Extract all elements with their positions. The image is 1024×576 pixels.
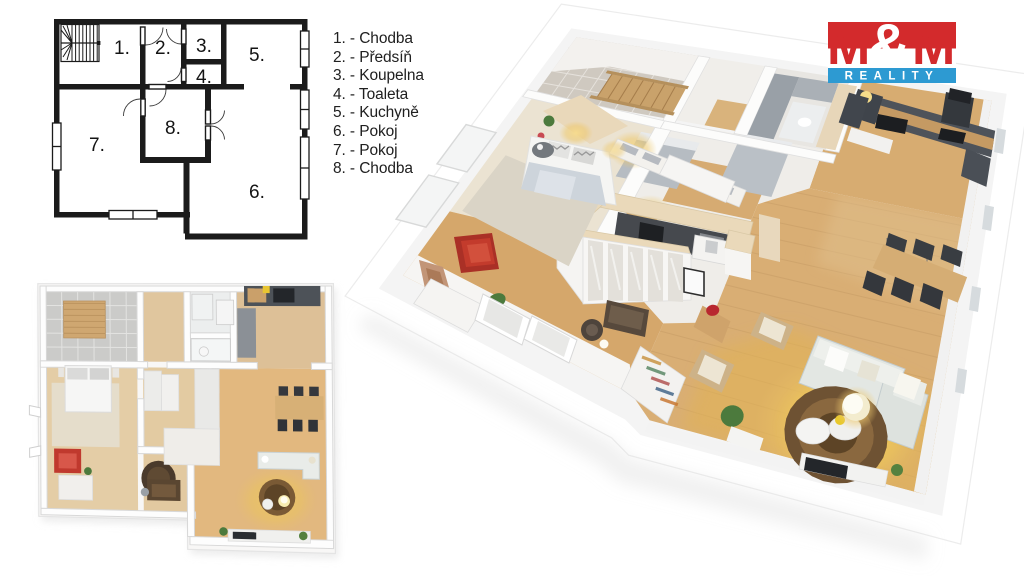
svg-text:5.: 5. — [249, 45, 265, 66]
svg-text:7.: 7. — [89, 135, 105, 156]
svg-text:M: M — [912, 22, 955, 76]
svg-text:M: M — [828, 22, 870, 76]
svg-text:6.: 6. — [249, 182, 265, 203]
svg-text:4.: 4. — [196, 67, 212, 88]
svg-text:2.: 2. — [155, 38, 171, 59]
svg-text:3.: 3. — [196, 36, 212, 57]
svg-text:1.: 1. — [114, 38, 130, 59]
svg-text:REALITY: REALITY — [845, 71, 940, 83]
svg-text:8.: 8. — [165, 118, 181, 139]
